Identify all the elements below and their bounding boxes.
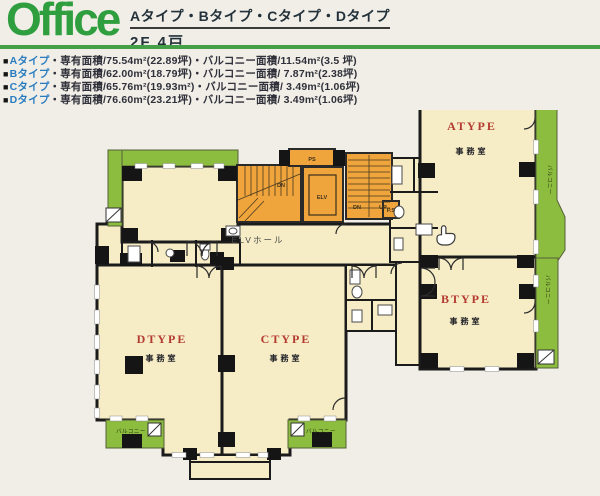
legend-square-icon: ■	[3, 81, 9, 94]
floor-plan: ELVホール ELV PS P.S DN DN UP ATYPE 事務室 BTY…	[0, 110, 600, 496]
legend-row-a: ■ Aタイプ ・専有面積/75.54m²(22.89坪)・バルコニー面積/11.…	[3, 55, 423, 68]
legend-details-d: ・専有面積/76.60m²(23.21坪)・バルコニー面積/ 3.49m²(1.…	[50, 94, 358, 107]
balcony-hatch	[106, 208, 121, 222]
legend-row-d: ■ Dタイプ ・専有面積/76.60m²(23.21坪)・バルコニー面積/ 3.…	[3, 94, 423, 107]
ps-small-label: P.S	[387, 208, 395, 214]
balcony-label-c: バルコニー	[306, 428, 336, 435]
legend-details-c: ・専有面積/65.76m²(19.93m²)・バルコニー面積/ 3.49m²(1…	[50, 81, 360, 94]
legend-square-icon: ■	[3, 94, 9, 107]
bottom-bay	[190, 455, 270, 479]
room-use-ctype: 事務室	[270, 353, 303, 363]
room-use-atype: 事務室	[456, 146, 489, 156]
legend-type-a: Aタイプ	[10, 55, 50, 68]
room-label-btype: BTYPE	[441, 292, 491, 306]
balcony-label-a: バルコニー	[546, 165, 553, 195]
legend-square-icon: ■	[3, 68, 9, 81]
legend-details-a: ・専有面積/75.54m²(22.89坪)・バルコニー面積/11.54m²(3.…	[50, 55, 357, 68]
legend-square-icon: ■	[3, 55, 9, 68]
balcony-label-b: バルコニー	[544, 275, 551, 305]
legend-row-c: ■ Cタイプ ・専有面積/65.76m²(19.93m²)・バルコニー面積/ 3…	[3, 81, 423, 94]
stairs-dn-label: DN	[277, 183, 285, 189]
room-btype	[420, 257, 536, 369]
room-label-dtype: DTYPE	[137, 332, 188, 346]
legend-type-b: Bタイプ	[10, 68, 50, 81]
room-label-ctype: CTYPE	[261, 332, 312, 346]
balcony-label-d: バルコニー	[116, 428, 146, 435]
legend-details-b: ・専有面積/62.00m²(18.79坪)・バルコニー面積/ 7.87m²(2.…	[50, 68, 358, 81]
legend-row-b: ■ Bタイプ ・専有面積/62.00m²(18.79坪)・バルコニー面積/ 7.…	[3, 68, 423, 81]
office-logo: Office	[6, 0, 118, 46]
stairs-up-label: UP	[379, 205, 387, 211]
room-label-atype: ATYPE	[447, 119, 497, 133]
header: Office Aタイプ・Bタイプ・Cタイプ・Dタイプ 2F 4戸	[0, 0, 600, 45]
room-use-dtype: 事務室	[146, 353, 179, 363]
elv-hall-label: ELVホール	[232, 235, 285, 245]
elv-label: ELV	[317, 195, 328, 201]
unit-legend: ■ Aタイプ ・専有面積/75.54m²(22.89坪)・バルコニー面積/11.…	[3, 55, 423, 107]
service-core	[237, 149, 399, 222]
legend-type-c: Cタイプ	[10, 81, 50, 94]
stairs-dn-label: DN	[353, 205, 361, 211]
page-title: Aタイプ・Bタイプ・Cタイプ・Dタイプ	[130, 6, 390, 29]
legend-type-d: Dタイプ	[10, 94, 50, 107]
room-use-btype: 事務室	[450, 316, 483, 326]
balcony-hatch	[291, 423, 304, 436]
balcony-hatch	[538, 350, 554, 364]
green-divider	[0, 45, 600, 49]
balcony-hatch	[148, 423, 161, 436]
ps-label: PS	[308, 157, 316, 163]
